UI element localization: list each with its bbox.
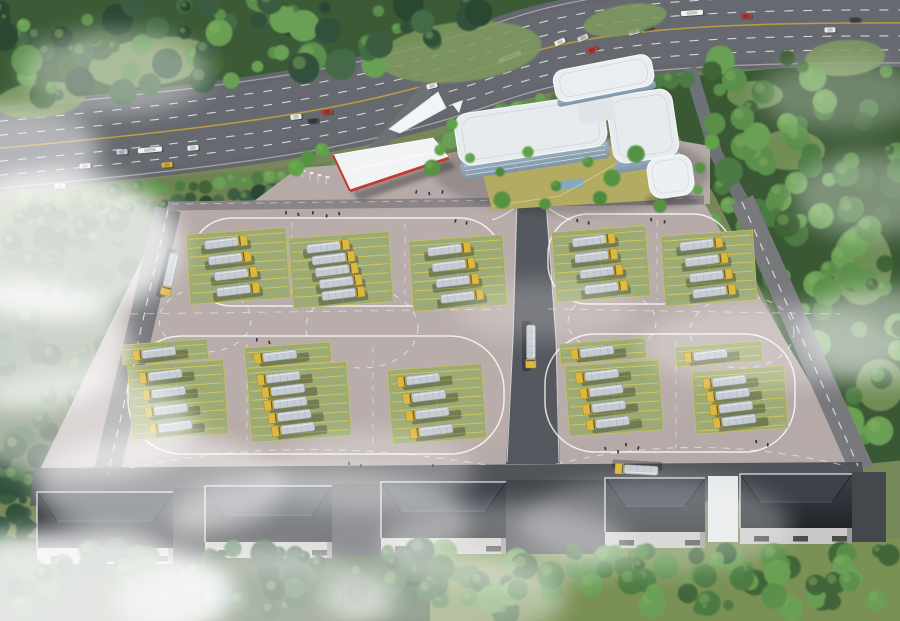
person	[312, 211, 314, 215]
tree-highlight	[265, 172, 270, 177]
tree-highlight	[583, 576, 593, 586]
vehicle-roof	[119, 150, 125, 154]
tree	[840, 572, 860, 592]
tree	[9, 481, 26, 498]
tree	[756, 155, 776, 175]
canopy-leg	[356, 190, 358, 196]
tree-highlight	[30, 29, 38, 37]
tree	[366, 31, 393, 58]
vehicle-roof	[293, 115, 299, 119]
tree	[81, 14, 93, 26]
truck-parking-pad	[186, 228, 291, 305]
tree	[522, 146, 533, 157]
rendering-canvas	[0, 0, 900, 621]
tree-highlight	[869, 592, 878, 601]
tree	[731, 106, 755, 130]
canopy-leg	[390, 180, 392, 186]
tree	[551, 181, 561, 191]
tree-highlight	[699, 594, 710, 605]
tree-highlight	[436, 146, 441, 151]
warehouse-gap	[852, 472, 886, 542]
tree	[288, 52, 319, 83]
tree-highlight	[19, 20, 25, 26]
vehicle-roof	[310, 119, 316, 123]
tree	[769, 184, 789, 204]
tree	[373, 5, 384, 16]
tree	[250, 12, 267, 29]
tree-highlight	[182, 2, 186, 6]
car	[740, 13, 753, 19]
cloud	[520, 477, 790, 573]
truck-trailer	[624, 465, 658, 476]
tree	[764, 560, 791, 587]
tree	[661, 71, 679, 89]
tree	[693, 185, 703, 195]
flag	[326, 176, 330, 178]
tree	[17, 19, 30, 32]
tree	[6, 503, 28, 525]
tree	[301, 151, 316, 166]
truck-parking-pad	[289, 232, 394, 309]
car	[849, 17, 862, 23]
tree-highlight	[552, 182, 556, 186]
tree-highlight	[868, 420, 880, 432]
tree	[213, 177, 226, 190]
tree-highlight	[466, 154, 470, 158]
tree	[315, 143, 329, 157]
tree-highlight	[823, 263, 830, 270]
tree-highlight	[584, 158, 589, 163]
tree	[801, 144, 821, 164]
tree-highlight	[809, 577, 818, 586]
truck-cab	[160, 285, 172, 296]
tree	[806, 574, 827, 595]
tree	[723, 600, 734, 611]
tree	[832, 554, 852, 574]
tree	[820, 261, 837, 278]
tree	[206, 19, 233, 46]
tree	[252, 61, 264, 73]
truck-parking-pad	[661, 230, 758, 306]
vehicle-roof	[827, 28, 833, 31]
tree	[180, 1, 191, 12]
truck-parking-pad	[247, 362, 352, 443]
tree	[627, 145, 645, 163]
tree	[774, 211, 800, 237]
tree-highlight	[198, 42, 207, 51]
aerial-site-rendering	[0, 0, 900, 621]
tree	[539, 198, 551, 210]
tree	[225, 172, 240, 187]
vehicle-roof	[164, 163, 170, 167]
tree-highlight	[703, 604, 707, 608]
tree	[704, 113, 726, 135]
truck-parking-pad	[565, 360, 664, 436]
tree-highlight	[293, 56, 306, 69]
cloud	[455, 280, 635, 340]
tree-highlight	[835, 557, 844, 566]
person	[625, 443, 627, 447]
tree	[679, 72, 695, 88]
tree	[446, 118, 457, 129]
tree	[866, 590, 887, 611]
tree	[678, 583, 698, 603]
person	[767, 443, 769, 447]
vehicle-roof	[852, 18, 858, 21]
tree	[319, 2, 330, 13]
car	[116, 149, 129, 156]
tree-highlight	[778, 214, 789, 225]
tree	[288, 160, 305, 177]
tree	[876, 255, 893, 272]
vehicle-roof	[743, 14, 749, 18]
tree	[252, 172, 265, 185]
tree-highlight	[874, 546, 879, 551]
tree	[872, 545, 885, 558]
tree	[701, 603, 711, 613]
tree	[0, 13, 10, 23]
tree	[780, 50, 795, 65]
flag	[318, 174, 322, 176]
tree-highlight	[393, 24, 398, 29]
tree-highlight	[278, 172, 282, 176]
tree	[761, 583, 787, 609]
tree-highlight	[622, 571, 633, 582]
tree	[240, 176, 252, 188]
car	[824, 27, 837, 33]
tree	[288, 10, 320, 42]
tree-highlight	[209, 22, 220, 33]
tree	[228, 188, 241, 201]
tree	[702, 61, 722, 81]
tree	[593, 191, 607, 205]
tree-highlight	[843, 574, 851, 582]
tree	[705, 135, 720, 150]
tree-highlight	[426, 162, 433, 169]
tree	[646, 584, 663, 601]
car	[161, 162, 174, 169]
tree	[189, 182, 198, 191]
tree-highlight	[759, 158, 768, 167]
tree	[715, 157, 743, 185]
vehicle-roof	[190, 146, 196, 150]
tree-highlight	[242, 178, 247, 183]
cloud	[265, 432, 475, 512]
tree-highlight	[723, 199, 730, 206]
tree	[845, 387, 862, 404]
tree	[263, 170, 275, 182]
cloud	[35, 433, 285, 537]
vehicle-roof	[324, 110, 330, 114]
warehouse-door	[832, 536, 847, 542]
tree	[27, 27, 46, 46]
warehouse-wall-shade	[847, 526, 852, 544]
tree	[411, 10, 435, 34]
tree	[465, 0, 492, 27]
tree	[722, 68, 747, 93]
tree	[493, 191, 510, 208]
cloud	[20, 30, 210, 114]
tree	[337, 49, 356, 68]
tree	[695, 163, 706, 174]
tree	[315, 17, 341, 43]
pavilion	[645, 153, 695, 200]
cloud	[640, 303, 900, 387]
tree	[583, 157, 594, 168]
tree-highlight	[290, 162, 297, 169]
person	[256, 338, 258, 342]
truck-parking-pad	[388, 364, 487, 444]
tree	[424, 160, 441, 177]
tree	[223, 72, 239, 88]
tree	[495, 167, 504, 176]
tree	[198, 180, 212, 194]
tree-highlight	[868, 280, 873, 285]
tree	[175, 181, 186, 192]
tree-highlight	[743, 567, 748, 572]
tree	[274, 45, 289, 60]
tree	[742, 565, 753, 576]
tree	[604, 170, 621, 187]
tree	[465, 153, 475, 163]
tree-highlight	[772, 186, 780, 194]
tree-highlight	[227, 174, 233, 180]
tree	[864, 416, 893, 445]
flag	[310, 172, 314, 174]
tree-highlight	[664, 73, 672, 81]
tree-highlight	[788, 174, 797, 183]
tree	[161, 183, 171, 193]
tree	[824, 593, 841, 610]
tree	[434, 144, 445, 155]
tree-highlight	[734, 109, 744, 119]
tree-highlight	[180, 27, 186, 33]
tree-highlight	[2, 14, 6, 18]
tree-highlight	[725, 70, 736, 81]
tree	[178, 26, 192, 40]
tree-highlight	[827, 574, 836, 583]
tree-highlight	[241, 192, 247, 198]
warehouse-door	[793, 536, 808, 542]
tree	[884, 145, 894, 155]
truck	[612, 459, 663, 476]
tree	[653, 199, 667, 213]
tree-highlight	[54, 29, 63, 38]
tree-highlight	[885, 146, 889, 150]
tree-highlight	[317, 145, 323, 151]
